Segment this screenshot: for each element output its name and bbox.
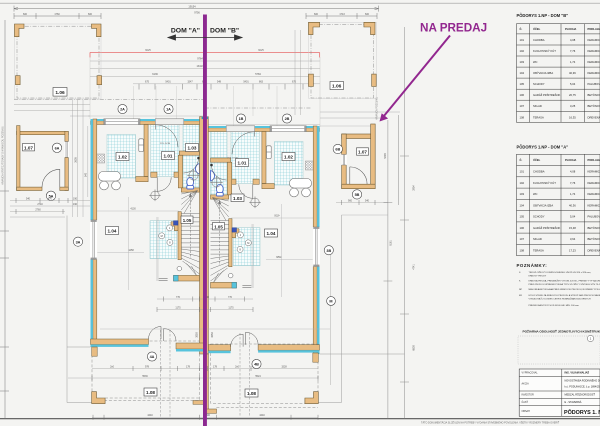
svg-text:103: 103 <box>520 60 525 64</box>
svg-text:HRANICA POZEMKU: HRANICA POZEMKU <box>376 97 379 120</box>
svg-text:PODLAHA: PODLAHA <box>588 158 600 162</box>
svg-text:4B: 4B <box>254 363 259 367</box>
svg-text:1528: 1528 <box>281 365 287 368</box>
svg-text:105: 105 <box>520 82 525 86</box>
svg-text:4,08: 4,08 <box>570 38 576 42</box>
svg-text:NEHORĽAVÁ PODLAHA PRED KRBOVOU: NEHORĽAVÁ PODLAHA PRED KRBOVOU PIECKOU, … <box>529 288 600 291</box>
svg-text:6136: 6136 <box>152 73 158 76</box>
svg-text:6A: 6A <box>55 146 60 150</box>
svg-text:8161: 8161 <box>390 240 393 246</box>
svg-text:PÔDORYS 1. NP: PÔDORYS 1. NP <box>564 408 600 416</box>
svg-text:107: 107 <box>520 237 525 241</box>
svg-text:190: 190 <box>73 203 78 206</box>
svg-text:3B: 3B <box>326 249 331 253</box>
svg-text:POZNÁMKY:: POZNÁMKY: <box>517 263 548 268</box>
svg-text:PLOCHA: PLOCHA <box>565 27 576 31</box>
svg-text:MEDZAL RÔZNORODOSŤ: MEDZAL RÔZNORODOSŤ <box>565 394 596 397</box>
svg-text:1.02: 1.02 <box>118 155 127 160</box>
svg-text:3050: 3050 <box>211 332 214 338</box>
svg-text:2605: 2605 <box>75 157 78 163</box>
svg-text:POŽIARNA ODOLNOSŤ JEDNOTLIVÝCH: POŽIARNA ODOLNOSŤ JEDNOTLIVÝCH KONŠTRUKC… <box>523 329 600 334</box>
svg-text:KERAMICKÁ: KERAMICKÁ <box>588 60 600 64</box>
svg-text:1.02: 1.02 <box>284 155 293 160</box>
svg-text:1175: 1175 <box>228 306 234 309</box>
svg-text:5,04: 5,04 <box>570 215 576 219</box>
svg-text:5536: 5536 <box>142 375 148 378</box>
svg-text:PALUBOVÁ: PALUBOVÁ <box>588 215 600 219</box>
svg-text:k.ú. PODUNAJCE, č.p. 1894/25: k.ú. PODUNAJCE, č.p. 1894/25 <box>565 386 600 389</box>
svg-text:5784: 5784 <box>255 73 261 76</box>
svg-text:CHODBA: CHODBA <box>533 170 545 174</box>
svg-text:DOM "A": DOM "A" <box>171 28 200 35</box>
svg-text:DREVENÁ: DREVENÁ <box>588 248 600 252</box>
svg-text:4A: 4A <box>150 355 155 359</box>
svg-text:178: 178 <box>213 365 218 368</box>
svg-text:5490: 5490 <box>384 153 387 159</box>
svg-text:1547: 1547 <box>187 81 193 84</box>
svg-text:2760: 2760 <box>35 208 41 211</box>
svg-text:102: 102 <box>520 181 525 185</box>
svg-text:1.04: 1.04 <box>108 229 117 234</box>
svg-text:675: 675 <box>292 81 297 84</box>
svg-text:600: 600 <box>314 13 319 16</box>
svg-text:VYPRACOVAL: VYPRACOVAL <box>522 372 539 375</box>
svg-text:NA PREDAJ: NA PREDAJ <box>420 21 487 34</box>
svg-text:3,25: 3,25 <box>570 104 576 108</box>
svg-text:600: 600 <box>365 13 370 16</box>
svg-text:PREDNOSADZOVÝCH VLNOLE HR. MI: PREDNOSADZOVÝCH VLNOLE HR. MIN. 100 mm <box>529 304 579 307</box>
svg-text:190: 190 <box>73 197 78 200</box>
svg-text:NOVOSTAVBA RODINNÉHO DOMU: NOVOSTAVBA RODINNÉHO DOMU <box>565 380 600 383</box>
svg-text:WC: WC <box>533 60 538 64</box>
svg-text:SCHODY: SCHODY <box>533 215 545 219</box>
svg-text:770: 770 <box>176 296 181 299</box>
svg-text:9756: 9756 <box>194 12 200 15</box>
svg-text:101: 101 <box>520 38 525 42</box>
svg-text:4130: 4130 <box>130 208 136 211</box>
svg-text:40,36: 40,36 <box>569 71 576 75</box>
svg-text:KERAMICKÁ: KERAMICKÁ <box>588 49 600 53</box>
svg-text:ING. VILIAM MALIAŠ: ING. VILIAM MALIAŠ <box>565 372 590 375</box>
svg-text:17,23: 17,23 <box>569 248 576 252</box>
svg-text:470: 470 <box>48 197 53 200</box>
svg-text:1.03: 1.03 <box>188 146 197 151</box>
svg-text:1.06: 1.06 <box>332 84 342 90</box>
svg-text:1,74: 1,74 <box>570 192 576 196</box>
svg-text:2954: 2954 <box>413 185 416 191</box>
svg-text:19154: 19154 <box>188 5 196 9</box>
svg-text:4,08: 4,08 <box>570 170 576 174</box>
svg-text:540: 540 <box>26 197 31 200</box>
svg-text:KERAMICKÁ: KERAMICKÁ <box>588 203 600 207</box>
svg-text:M: M <box>161 234 163 238</box>
svg-text:PÔDORYS 1.NP - DOM "B": PÔDORYS 1.NP - DOM "B" <box>517 13 569 18</box>
svg-text:1.07: 1.07 <box>358 150 367 155</box>
svg-text:VYBUDOVAŤ Z DOSIEK CETRIS HOBR: VYBUDOVAŤ Z DOSIEK CETRIS HOBRA ŽIARUVZD… <box>529 298 591 301</box>
svg-text:13413: 13413 <box>197 65 205 68</box>
svg-text:16,35: 16,35 <box>569 115 576 119</box>
svg-text:600: 600 <box>88 13 93 16</box>
svg-text:M: M <box>329 300 332 304</box>
svg-text:KUCHYNSKÝ KÚT: KUCHYNSKÝ KÚT <box>533 181 556 185</box>
svg-text:TÁTO DOKUMENTÁCIA SLÚŽI LEN NA: TÁTO DOKUMENTÁCIA SLÚŽI LEN NA POTREBY V… <box>421 421 560 424</box>
svg-text:SKLAD: SKLAD <box>533 237 542 241</box>
svg-text:4440: 4440 <box>259 414 265 417</box>
svg-text:KERAMICKÁ: KERAMICKÁ <box>588 170 600 174</box>
svg-text:E - STAVEBNÁ: E - STAVEBNÁ <box>565 401 582 404</box>
svg-text:1B: 1B <box>239 117 244 121</box>
svg-text:POL.DOM: POL.DOM <box>228 158 238 160</box>
svg-text:3050: 3050 <box>196 332 199 338</box>
svg-text:5524: 5524 <box>255 375 261 378</box>
svg-text:548: 548 <box>217 81 222 84</box>
svg-text:OBÝVACIA IZBA: OBÝVACIA IZBA <box>533 203 553 207</box>
svg-text:3,64: 3,64 <box>570 237 576 241</box>
svg-text:4741: 4741 <box>413 264 416 270</box>
svg-text:TERASA: TERASA <box>533 115 544 119</box>
svg-text:SKLAD: SKLAD <box>533 104 542 108</box>
svg-text:103: 103 <box>520 192 525 196</box>
svg-text:KERAMICKÁ: KERAMICKÁ <box>588 181 600 185</box>
svg-text:PLOCHA: PLOCHA <box>565 158 576 162</box>
svg-text:105: 105 <box>520 215 525 219</box>
svg-text:5B: 5B <box>355 193 360 197</box>
svg-text:107: 107 <box>520 104 525 108</box>
svg-text:1A: 1A <box>166 108 171 112</box>
svg-text:NP: NP <box>519 289 523 291</box>
svg-text:3A: 3A <box>76 240 81 244</box>
svg-text:20,75: 20,75 <box>569 93 576 97</box>
svg-text:1.08: 1.08 <box>247 391 256 396</box>
svg-text:6025: 6025 <box>145 49 151 52</box>
svg-text:15,48: 15,48 <box>569 226 576 230</box>
svg-text:1.01: 1.01 <box>238 161 247 166</box>
svg-text:9764: 9764 <box>197 58 203 61</box>
svg-text:CHODBA: CHODBA <box>533 38 545 42</box>
svg-text:1743: 1743 <box>339 13 345 16</box>
svg-text:DREVENÁ: DREVENÁ <box>588 115 600 119</box>
svg-text:1175: 1175 <box>175 306 181 309</box>
svg-text:6025: 6025 <box>258 49 264 52</box>
svg-text:1,74: 1,74 <box>570 60 576 64</box>
svg-text:KUCHYNSKÝ KÚT: KUCHYNSKÝ KÚT <box>533 49 556 53</box>
svg-text:600: 600 <box>23 13 28 16</box>
svg-text:770: 770 <box>228 296 233 299</box>
svg-text:178: 178 <box>186 365 191 368</box>
svg-text:5401: 5401 <box>165 81 171 84</box>
svg-text:108: 108 <box>520 248 525 252</box>
svg-text:540: 540 <box>85 172 88 177</box>
svg-text:INVESTOR: INVESTOR <box>522 394 534 397</box>
svg-text:40,36: 40,36 <box>569 203 576 207</box>
svg-text:1258: 1258 <box>128 249 134 252</box>
svg-text:106: 106 <box>520 93 525 97</box>
svg-text:1760: 1760 <box>54 13 60 16</box>
svg-text:675: 675 <box>145 81 150 84</box>
svg-text:PRED PECKOU UPRESNÍ PODEA TYPU: PRED PECKOU UPRESNÍ PODEA TYPU VLOŽKY V … <box>529 283 600 286</box>
svg-text:104: 104 <box>520 203 525 207</box>
svg-text:1.08: 1.08 <box>146 390 155 395</box>
svg-text:2x0: 2x0 <box>110 365 115 368</box>
svg-text:6B: 6B <box>335 148 340 152</box>
svg-text:2x0: 2x0 <box>235 365 240 368</box>
svg-text:PÔDORYS 1.NP - DOM "A": PÔDORYS 1.NP - DOM "A" <box>517 145 569 150</box>
svg-text:108: 108 <box>520 115 525 119</box>
svg-text:KERAMICKÁ: KERAMICKÁ <box>588 192 600 196</box>
svg-text:PALUBOVÁ: PALUBOVÁ <box>588 82 600 86</box>
svg-text:540: 540 <box>365 199 370 202</box>
svg-text:900: 900 <box>348 199 353 202</box>
svg-text:1.05: 1.05 <box>214 224 223 229</box>
svg-text:2B: 2B <box>285 117 290 121</box>
svg-text:1.04: 1.04 <box>267 231 276 236</box>
svg-text:6800: 6800 <box>413 345 416 351</box>
svg-text:102: 102 <box>520 49 525 53</box>
svg-text:WC: WC <box>533 192 538 196</box>
svg-text:IZOLÚ STENU ZA KRBOVOU PIECKOU: IZOLÚ STENU ZA KRBOVOU PIECKOU A STROP N… <box>529 294 600 297</box>
svg-text:KRBOVÁ PIECKA, PREDBEŽNÝ VÝKON: KRBOVÁ PIECKA, PREDBEŽNÝ VÝKON 4-8 kW - … <box>529 280 600 283</box>
svg-text:1.07: 1.07 <box>24 145 33 150</box>
svg-text:OBÝVACIA IZBA: OBÝVACIA IZBA <box>533 71 553 75</box>
svg-text:OBSAH: OBSAH <box>522 410 531 413</box>
svg-text:7,76: 7,76 <box>570 181 576 185</box>
svg-text:7,76: 7,76 <box>570 49 576 53</box>
svg-text:1.06: 1.06 <box>55 90 65 96</box>
svg-text:PODLAHA: PODLAHA <box>588 27 600 31</box>
svg-text:5401: 5401 <box>243 81 249 84</box>
svg-text:ČASŤ: ČASŤ <box>522 401 529 404</box>
svg-text:SCHODY: SCHODY <box>533 82 545 86</box>
svg-text:KRBOVÝ PIECKY: KRBOVÝ PIECKY <box>529 275 547 278</box>
svg-text:KERAMICKÁ: KERAMICKÁ <box>588 38 600 42</box>
svg-text:978: 978 <box>145 365 150 368</box>
svg-text:HRANICA KRYTEJ TERASY S HRANIC: HRANICA KRYTEJ TERASY S HRANICOU POZEMKU <box>2 126 5 185</box>
svg-text:1.05: 1.05 <box>183 218 192 223</box>
svg-text:5,04: 5,04 <box>570 82 576 86</box>
svg-text:4440: 4440 <box>147 414 153 417</box>
svg-text:104: 104 <box>520 71 525 75</box>
svg-text:863: 863 <box>259 81 264 84</box>
svg-text:POL.DOM: POL.DOM <box>160 143 170 145</box>
svg-text:106: 106 <box>520 226 525 230</box>
svg-text:TROJZLOŽKOVÝ KOMÍN SCHIEDEL UN: TROJZLOŽKOVÝ KOMÍN SCHIEDEL UNI PLUS 320… <box>529 271 592 274</box>
svg-text:KERAMICKÁ: KERAMICKÁ <box>588 71 600 75</box>
svg-text:2740: 2740 <box>37 203 43 206</box>
svg-text:2A: 2A <box>120 108 125 112</box>
svg-text:1.03: 1.03 <box>233 196 242 201</box>
svg-text:101: 101 <box>520 170 525 174</box>
svg-text:AKCIA: AKCIA <box>522 383 530 386</box>
svg-text:TERASA: TERASA <box>533 248 544 252</box>
svg-text:DOM "B": DOM "B" <box>210 28 239 35</box>
svg-text:1.01: 1.01 <box>164 154 173 159</box>
